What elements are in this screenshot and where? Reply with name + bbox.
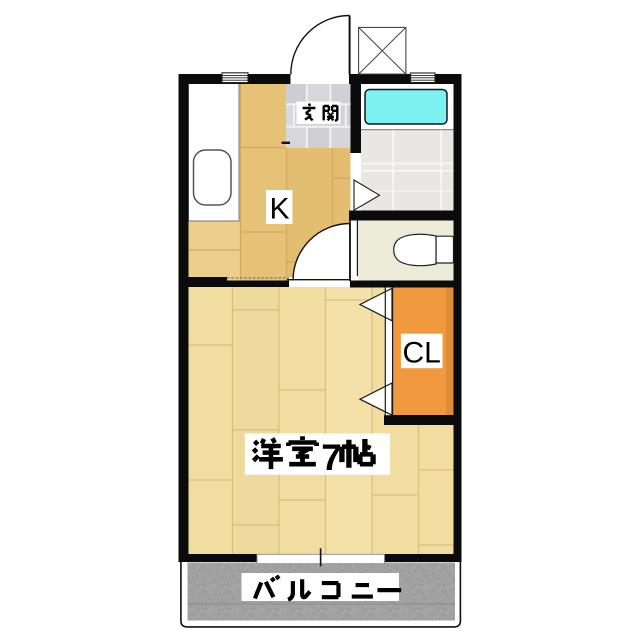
svg-text:7: 7 [321,437,342,478]
svg-text:CL: CL [403,337,441,370]
svg-text:K: K [269,193,289,226]
